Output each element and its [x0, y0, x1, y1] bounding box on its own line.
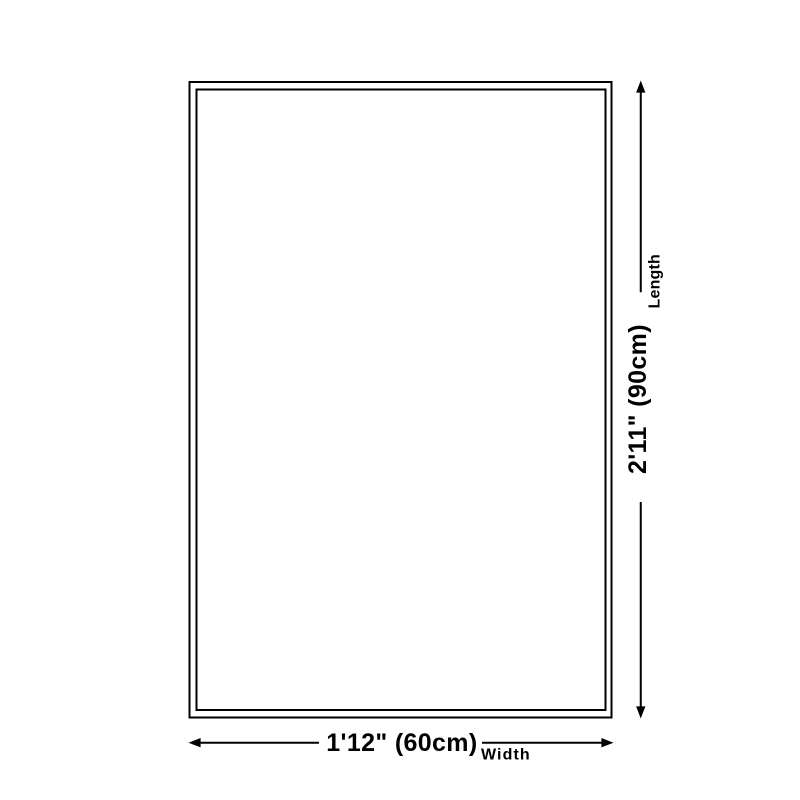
- svg-text:1'12" (60cm): 1'12" (60cm): [326, 729, 477, 757]
- svg-text:2'11" (90cm): 2'11" (90cm): [624, 324, 652, 474]
- svg-text:Width: Width: [481, 747, 531, 764]
- svg-text:Length: Length: [647, 254, 664, 309]
